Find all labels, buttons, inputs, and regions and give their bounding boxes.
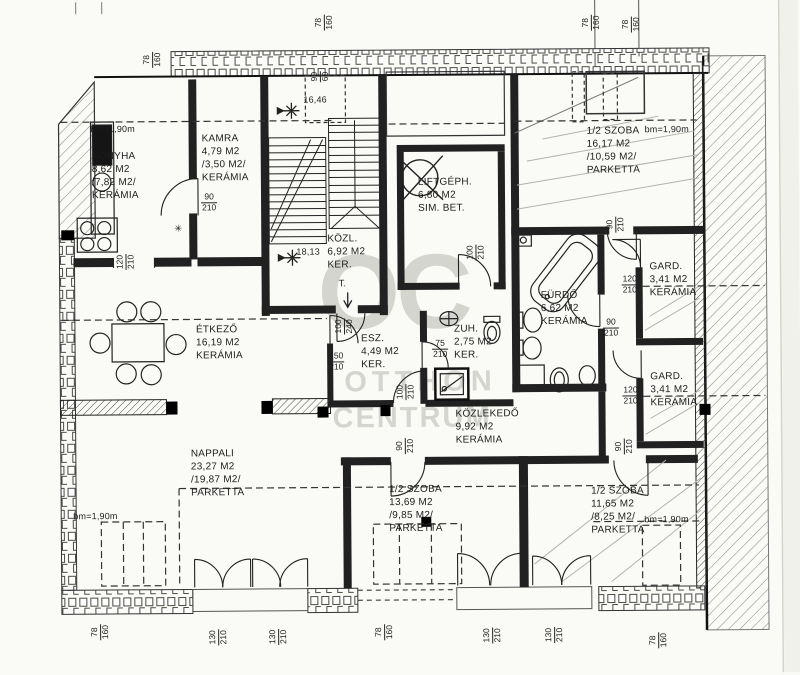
level-markers bbox=[277, 102, 351, 308]
dim-door: 100240 bbox=[334, 318, 354, 334]
level-value-landing: 16,46 bbox=[303, 95, 327, 105]
room-label-szoba-jobb: 1/2 SZOBA 11,65 M2 /8,25 M2/ PARKETTA bbox=[591, 484, 645, 536]
floor-plan: OC OTTHON CENTRUM bbox=[0, 0, 800, 675]
dim-door-kozlekedo: 90210 bbox=[395, 438, 415, 454]
dim-door: 100210 bbox=[395, 384, 415, 400]
flue-mark: ✳ bbox=[174, 224, 182, 235]
room-label-etkezo: ÉTKEZŐ 16,19 M2 KERÁMIA bbox=[196, 323, 243, 362]
dim-hatch: 9060 bbox=[310, 71, 330, 83]
dim-window: 130210 bbox=[268, 629, 288, 645]
room-label-konyha: KONYHA 8,62 M2 /7,82 M2/ KERÁMIA bbox=[92, 150, 139, 202]
room-label-szoba-also: 1/2 SZOBA 13,69 M2 /9,85 M2/ PARKETTA bbox=[389, 483, 443, 535]
room-label-kamra: KAMRA 4,79 M2 /3,50 M2/ KERÁMIA bbox=[202, 132, 249, 184]
trapdoor-label: T. bbox=[339, 278, 346, 289]
room-label-liftgeph: LIFTGÉPH. 6,80 M2 SIM. BET. bbox=[418, 175, 472, 214]
dim-window: 78160 bbox=[648, 632, 668, 648]
room-label-zuh: ZUH. 2,75 M2 KER. bbox=[454, 322, 492, 361]
room-label-gard-2: GARD. 3,41 M2 KERÁMIA bbox=[650, 370, 697, 409]
dim-door-lift: 100210 bbox=[465, 244, 485, 260]
dining-table bbox=[90, 301, 187, 385]
dim-door-konyha: 120210 bbox=[115, 254, 135, 270]
room-label-esz: ESZ. 4,49 M2 KER. bbox=[361, 332, 399, 371]
dim-window: 78160 bbox=[314, 14, 334, 30]
ceiling-height-label: bm=1,90m bbox=[644, 514, 688, 524]
dim-window: 130210 bbox=[208, 629, 228, 645]
dim-door-folyoso: 90210 bbox=[605, 216, 625, 232]
dim-window: 78160 bbox=[90, 624, 110, 640]
dim-window: 78160 bbox=[621, 16, 641, 32]
ceiling-height-label: bm=1,90m bbox=[645, 124, 689, 134]
dim-window: 130210 bbox=[544, 627, 564, 643]
dim-door-esz: 150210 bbox=[328, 351, 344, 371]
dim-door-gard-1: 120210 bbox=[622, 274, 638, 294]
plan-linework bbox=[0, 0, 800, 675]
dim-window: 78160 bbox=[374, 624, 394, 640]
ceiling-height-label: bm=1,90m bbox=[91, 124, 135, 134]
french-doors bbox=[195, 553, 591, 588]
trapdoor-arrow bbox=[344, 292, 352, 307]
scanned-floor-plan: OC OTTHON CENTRUM bbox=[0, 0, 800, 675]
ceiling-height-label: bm=1,90m bbox=[73, 511, 117, 521]
dim-window: 78160 bbox=[581, 15, 601, 31]
staircase bbox=[268, 118, 380, 244]
dim-door-szoba-jobb: 90210 bbox=[614, 438, 634, 454]
level-value-upper: 18,13 bbox=[296, 247, 320, 257]
room-label-kozl: KÖZL. 6,92 M2 KER. bbox=[327, 232, 365, 271]
room-label-nappali: NAPPALI 23,27 M2 /19,87 M2/ PARKETTA bbox=[191, 447, 245, 499]
dim-door-furdo: 90210 bbox=[603, 317, 619, 337]
room-label-kozlekedo: KÖZLEKEDŐ 9,92 M2 KERÁMIA bbox=[455, 407, 519, 446]
room-label-gard-1: GARD. 3,41 M2 KERÁMIA bbox=[649, 260, 696, 299]
dim-window: 78160 bbox=[142, 52, 162, 68]
room-label-furdo: FÜRDŐ 6,62 M2 KERÁMIA bbox=[541, 289, 588, 328]
dim-door-zuh: 75210 bbox=[432, 339, 448, 359]
room-label-szoba-felso: 1/2 SZOBA 16,17 M2 /10,59 M2/ PARKETTA bbox=[587, 124, 641, 176]
dim-window: 130210 bbox=[482, 627, 502, 643]
dim-door-gard-2: 120210 bbox=[622, 385, 638, 405]
dim-door-kamra: 90210 bbox=[201, 192, 217, 212]
